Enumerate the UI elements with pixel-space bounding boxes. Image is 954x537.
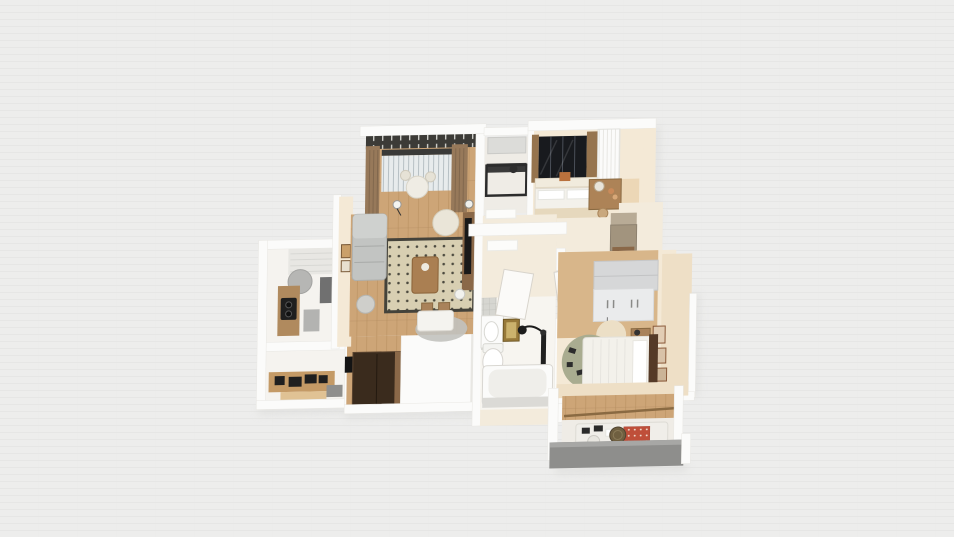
living-foreground-wall — [400, 332, 475, 406]
wall-frame[interactable] — [341, 261, 350, 272]
coffee-table[interactable] — [412, 257, 438, 294]
shower-column[interactable] — [541, 330, 547, 366]
speaker[interactable] — [345, 357, 353, 373]
utility-shelf[interactable] — [488, 137, 526, 154]
dining-table[interactable] — [417, 310, 453, 331]
cabinet-seam — [376, 354, 377, 404]
kitchen-wall-south — [256, 399, 352, 410]
floorplan-canvas[interactable] — [0, 0, 954, 537]
dark-throw — [567, 362, 573, 367]
dark-pillow — [594, 425, 603, 431]
floor-lamp[interactable] — [393, 201, 401, 209]
bistro-table[interactable] — [406, 176, 428, 198]
render-viewport — [0, 0, 954, 537]
appliance-black[interactable] — [319, 375, 328, 383]
vanity-mirror — [594, 181, 604, 191]
balcony-wall-end — [681, 433, 690, 463]
kitchen-dark-mat — [326, 385, 342, 397]
vanity-stool[interactable] — [598, 208, 608, 218]
runner-mat — [486, 209, 516, 219]
floorplan[interactable] — [255, 117, 702, 480]
cabinet-wood-edge — [394, 352, 401, 406]
room-bedroom-second[interactable] — [554, 249, 697, 403]
wardrobe[interactable] — [593, 288, 653, 321]
round-side-table[interactable] — [610, 427, 626, 443]
tripod-lamp[interactable] — [465, 200, 473, 208]
hall-cross-wall — [469, 222, 567, 236]
room-entry[interactable] — [344, 332, 479, 414]
balcony-chair[interactable] — [400, 170, 410, 180]
balcony-chair[interactable] — [425, 172, 435, 182]
bed2-pillows — [632, 340, 647, 388]
room-kids[interactable] — [547, 381, 691, 468]
appliance-black[interactable] — [289, 377, 302, 387]
kitchen-mat[interactable] — [303, 309, 319, 331]
wall-frame[interactable] — [341, 245, 350, 258]
runner-mat — [487, 240, 517, 251]
wall-frame[interactable] — [656, 368, 666, 381]
robot-vacuum[interactable] — [455, 289, 465, 299]
appliance-black[interactable] — [305, 374, 317, 383]
sofa-chaise — [353, 214, 387, 239]
burner — [286, 302, 292, 308]
burner — [286, 311, 292, 317]
dark-pillow — [582, 428, 590, 434]
gold-art-inner — [506, 322, 516, 338]
utility-wall-north — [484, 127, 532, 136]
appliance-black[interactable] — [275, 376, 285, 385]
reading-chair[interactable] — [357, 295, 375, 313]
bathtub-inner — [488, 368, 546, 397]
room-utility-balcony[interactable] — [483, 127, 536, 218]
sink-basin — [484, 321, 498, 341]
window-post — [531, 135, 539, 183]
bed1-pillow — [538, 190, 564, 200]
orange-cushion[interactable] — [559, 172, 570, 181]
outer-wall-east — [688, 293, 696, 397]
bathtub-panel — [482, 396, 552, 407]
armchair[interactable] — [433, 209, 459, 236]
vanity-desk[interactable] — [589, 179, 621, 210]
